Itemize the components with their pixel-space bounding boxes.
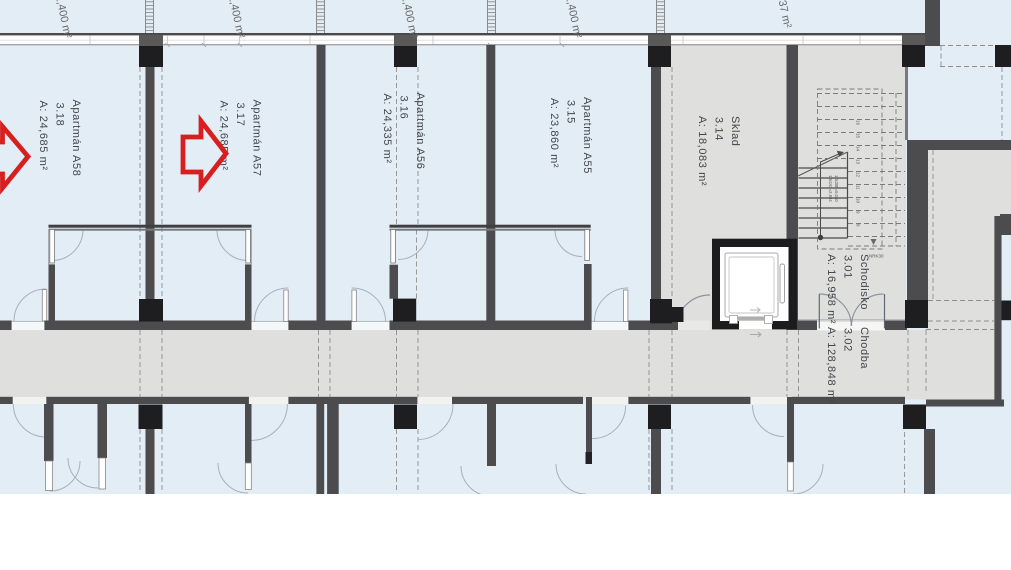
svg-text:3.02: 3.02 [842,328,854,352]
svg-text:18x280=5,040: 18x280=5,040 [834,175,839,202]
svg-text:3.16: 3.16 [398,96,410,120]
svg-text:3.15: 3.15 [565,100,577,124]
svg-text:18x163=2,934: 18x163=2,934 [828,175,833,202]
svg-text:NRK30: NRK30 [869,254,884,259]
svg-text:13: 13 [856,159,861,165]
svg-text:10: 10 [856,198,861,204]
svg-text:Apartmán A56: Apartmán A56 [414,93,426,170]
svg-text:16: 16 [856,120,861,126]
svg-text:15: 15 [856,133,861,139]
svg-text:Schodisko: Schodisko [858,254,870,310]
svg-text:Sklad: Sklad [729,116,741,147]
svg-text:Apartmán A58: Apartmán A58 [70,100,82,177]
svg-text:3.14: 3.14 [713,117,725,141]
svg-text:14: 14 [856,146,861,152]
svg-text:Apartmán A55: Apartmán A55 [581,97,593,174]
svg-text:Chodba: Chodba [858,327,870,369]
svg-text:A: 128,848 m²: A: 128,848 m² [825,327,837,404]
svg-text:3.17: 3.17 [234,103,246,127]
svg-text:A: 23,860 m²: A: 23,860 m² [548,98,560,168]
svg-text:A: 24,685 m²: A: 24,685 m² [37,101,49,171]
svg-text:A: 18,083 m²: A: 18,083 m² [696,116,708,186]
svg-text:11: 11 [856,185,861,190]
svg-text:3.18: 3.18 [54,103,66,127]
svg-text:A: 24,335 m²: A: 24,335 m² [381,94,393,164]
svg-text:Apartmán A57: Apartmán A57 [251,100,263,177]
svg-text:3.01: 3.01 [842,255,854,279]
svg-text:12: 12 [856,172,861,178]
svg-text:A: 16,958 m²: A: 16,958 m² [825,254,837,324]
